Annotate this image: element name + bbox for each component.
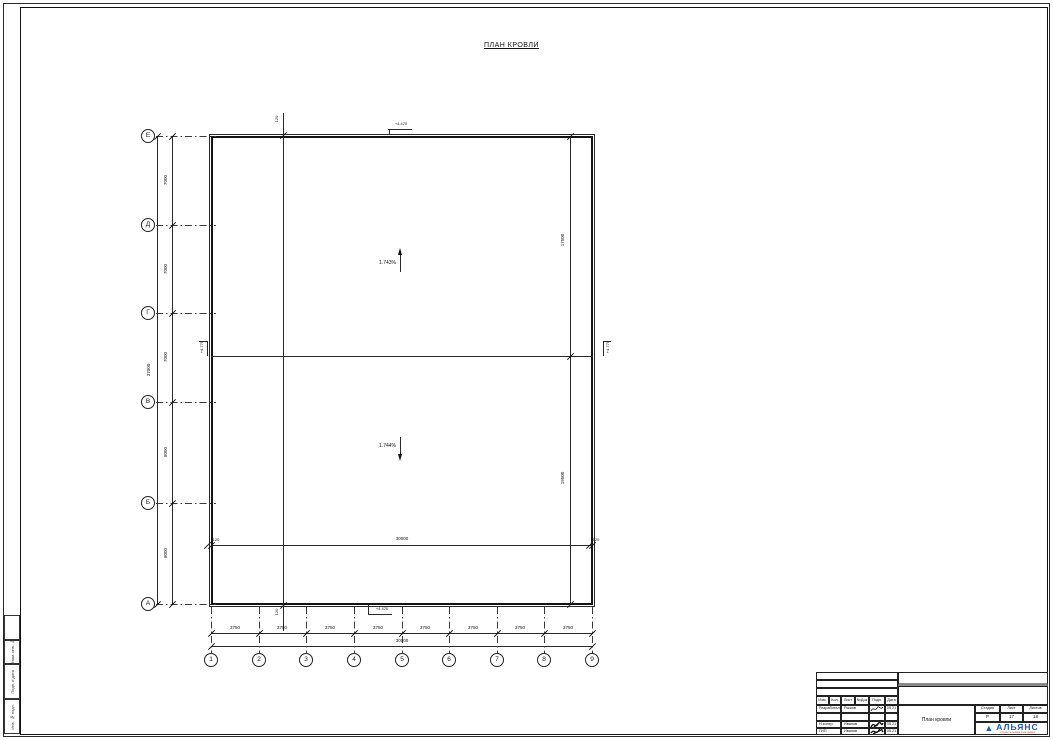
dim-bottom-8: 3750 — [553, 626, 583, 631]
tb-stage-label: Стадия — [975, 705, 1000, 713]
page-title: ПЛАН КРОВЛИ — [430, 42, 593, 49]
dim-inner-total: 30000 — [382, 537, 422, 542]
dim-inner-offset-right: 120 — [586, 538, 606, 542]
axis-line — [544, 607, 545, 653]
axis-line — [156, 313, 216, 314]
frame-cell-vzam: Взам. инв. № — [4, 640, 20, 664]
tb-blank-row — [885, 713, 898, 721]
roof-joint-line — [283, 113, 284, 631]
axis-line — [306, 607, 307, 653]
frame-cell-podp-label: Подп. и дата — [10, 670, 15, 694]
tb-rev-row — [816, 680, 898, 688]
left-dim-line-segments — [172, 136, 173, 605]
axis-line — [402, 607, 403, 653]
tb-col-ndok: №Док — [855, 696, 869, 705]
axis-label: 6 — [447, 657, 451, 664]
tb-project-cell-top — [898, 672, 1048, 686]
tb-logo-cell: ▲ АЛЬЯНС строительная компания — [975, 722, 1048, 735]
doc-title: План кровли — [922, 718, 951, 723]
tb-blank-row — [841, 713, 869, 721]
tb-sheets-label: Листов — [1023, 705, 1048, 713]
level-ridge-right: +4.775 — [603, 332, 613, 362]
tb-role-nkontr: Н.контр. — [816, 721, 841, 728]
tb-name-nkontr: Иванов — [841, 721, 869, 728]
tb-rev-row — [816, 672, 898, 680]
frame-cell-vzam-label: Взам. инв. № — [10, 639, 15, 665]
tb-col-data: Дата — [885, 696, 898, 705]
tb-stage-value: Р — [975, 713, 1000, 722]
axis-circle-6: 6 — [442, 653, 456, 667]
axis-line — [449, 607, 450, 653]
tb-blank-row — [816, 713, 841, 721]
dim-right-upper: 17500 — [558, 225, 568, 255]
frame-cell-podp: Подп. и дата — [4, 664, 20, 699]
axis-line — [156, 604, 216, 605]
axis-circle-3: 3 — [299, 653, 313, 667]
axis-circle-5: 5 — [395, 653, 409, 667]
slope-upper-label: 1.743% — [358, 260, 396, 266]
axis-circle-G: Г — [141, 306, 155, 320]
dim-parapet-bottom: 120 — [272, 597, 282, 627]
tb-rev-row — [816, 688, 898, 696]
frame-cell-blank — [4, 615, 20, 640]
tb-col-kol: Кол. — [829, 696, 841, 705]
slope-lower-arrow-icon — [398, 454, 402, 461]
tb-date-nkontr: 05.21 — [885, 721, 898, 728]
axis-label: Г — [146, 310, 150, 317]
axis-circle-V: В — [141, 395, 155, 409]
axis-line — [156, 136, 216, 137]
logo-subtitle: строительная компания — [1000, 731, 1035, 734]
tb-sheet-label: Лист — [1000, 705, 1023, 713]
axis-line — [497, 607, 498, 653]
tb-col-list: Лист — [841, 696, 855, 705]
signature-icon — [870, 728, 884, 735]
dim-left-2: 7000 — [161, 254, 171, 284]
tb-doc-title-cell: План кровли — [898, 705, 975, 735]
dim-left-1: 7000 — [161, 165, 171, 195]
tb-date-gip: 05.21 — [885, 728, 898, 735]
tb-project-cell — [898, 686, 1048, 705]
dim-bottom-6: 3750 — [458, 626, 488, 631]
level-ridge-left: +4.775 — [197, 332, 207, 362]
axis-circle-D: Д — [141, 218, 155, 232]
axis-label: 3 — [304, 657, 308, 664]
level-top: +4.470 — [390, 122, 412, 126]
inner-dim-line — [211, 545, 593, 546]
tb-sheet-value: 17 — [1000, 713, 1023, 722]
dim-bottom-3: 3750 — [315, 626, 345, 631]
tb-name-razrab: Рыжов — [841, 705, 869, 713]
dim-left-total: 37000 — [144, 355, 154, 385]
level-flag-top-leader — [389, 129, 390, 135]
drawing-sheet: Взам. инв. № Подп. и дата Инв. № подл. П… — [0, 0, 1053, 740]
axis-label: Д — [146, 222, 150, 229]
frame-cell-inv: Инв. № подл. — [4, 699, 20, 734]
axis-label: Е — [146, 133, 150, 140]
dim-left-5: 8000 — [161, 538, 171, 568]
level-flag-top-line — [388, 129, 412, 130]
signature-icon — [870, 705, 884, 713]
dim-right-lower: 19500 — [558, 463, 568, 493]
axis-line — [156, 503, 216, 504]
axis-circle-2: 2 — [252, 653, 266, 667]
right-dim-line — [570, 136, 571, 605]
level-bottom: +4.470 — [371, 607, 393, 611]
axis-label: В — [146, 399, 150, 406]
tb-date-razrab: 05.21 — [885, 705, 898, 713]
axis-circle-A: А — [141, 597, 155, 611]
axis-circle-1: 1 — [204, 653, 218, 667]
axis-label: Б — [146, 500, 150, 507]
slope-lower-label: 1.744% — [358, 443, 396, 449]
dim-bottom-1: 3750 — [220, 626, 250, 631]
tb-sheets-value: 18 — [1023, 713, 1048, 722]
slope-upper-arrow-shaft — [400, 253, 401, 272]
axis-circle-E: Е — [141, 129, 155, 143]
axis-line — [354, 607, 355, 653]
dim-bottom-7: 3750 — [505, 626, 535, 631]
axis-circle-8: 8 — [537, 653, 551, 667]
axis-label: 8 — [542, 657, 546, 664]
axis-circle-7: 7 — [490, 653, 504, 667]
level-flag-bottom-line — [368, 614, 392, 615]
tb-role-razrab: Разработал — [816, 705, 841, 713]
tb-col-izm: Изм. — [816, 696, 829, 705]
axis-circle-4: 4 — [347, 653, 361, 667]
ridge-line — [211, 356, 593, 357]
slope-upper-arrow-icon — [398, 248, 402, 255]
dim-bottom-4: 3750 — [363, 626, 393, 631]
axis-circle-B: Б — [141, 496, 155, 510]
dim-bottom-5: 3750 — [410, 626, 440, 631]
tb-role-gip: ГИП — [816, 728, 841, 735]
axis-label: 9 — [590, 657, 594, 664]
axis-line — [156, 225, 216, 226]
signature-icon — [870, 721, 884, 728]
axis-label: 4 — [352, 657, 356, 664]
level-flag-ridge-left-leader — [207, 341, 208, 356]
frame-cell-inv-label: Инв. № подл. — [10, 704, 15, 730]
tb-col-podp: Подп. — [869, 696, 885, 705]
dim-left-3: 7000 — [161, 342, 171, 372]
tb-blank-row — [869, 713, 885, 721]
axis-line — [259, 607, 260, 653]
axis-label: 5 — [400, 657, 404, 664]
tb-sig-gip — [869, 728, 885, 735]
tb-name-gip: Иванов — [841, 728, 869, 735]
dim-left-4: 8000 — [161, 437, 171, 467]
axis-line — [156, 402, 216, 403]
axis-circle-9: 9 — [585, 653, 599, 667]
tb-sig-nkontr — [869, 721, 885, 728]
dim-parapet-top: 120 — [272, 104, 282, 134]
tb-sig-razrab — [869, 705, 885, 713]
axis-label: 2 — [257, 657, 261, 664]
axis-label: 1 — [209, 657, 213, 664]
axis-label: А — [146, 601, 150, 608]
alliance-logo-icon: ▲ — [984, 724, 993, 733]
axis-label: 7 — [495, 657, 499, 664]
left-dim-line-total — [157, 136, 158, 605]
building-outline — [211, 136, 593, 605]
